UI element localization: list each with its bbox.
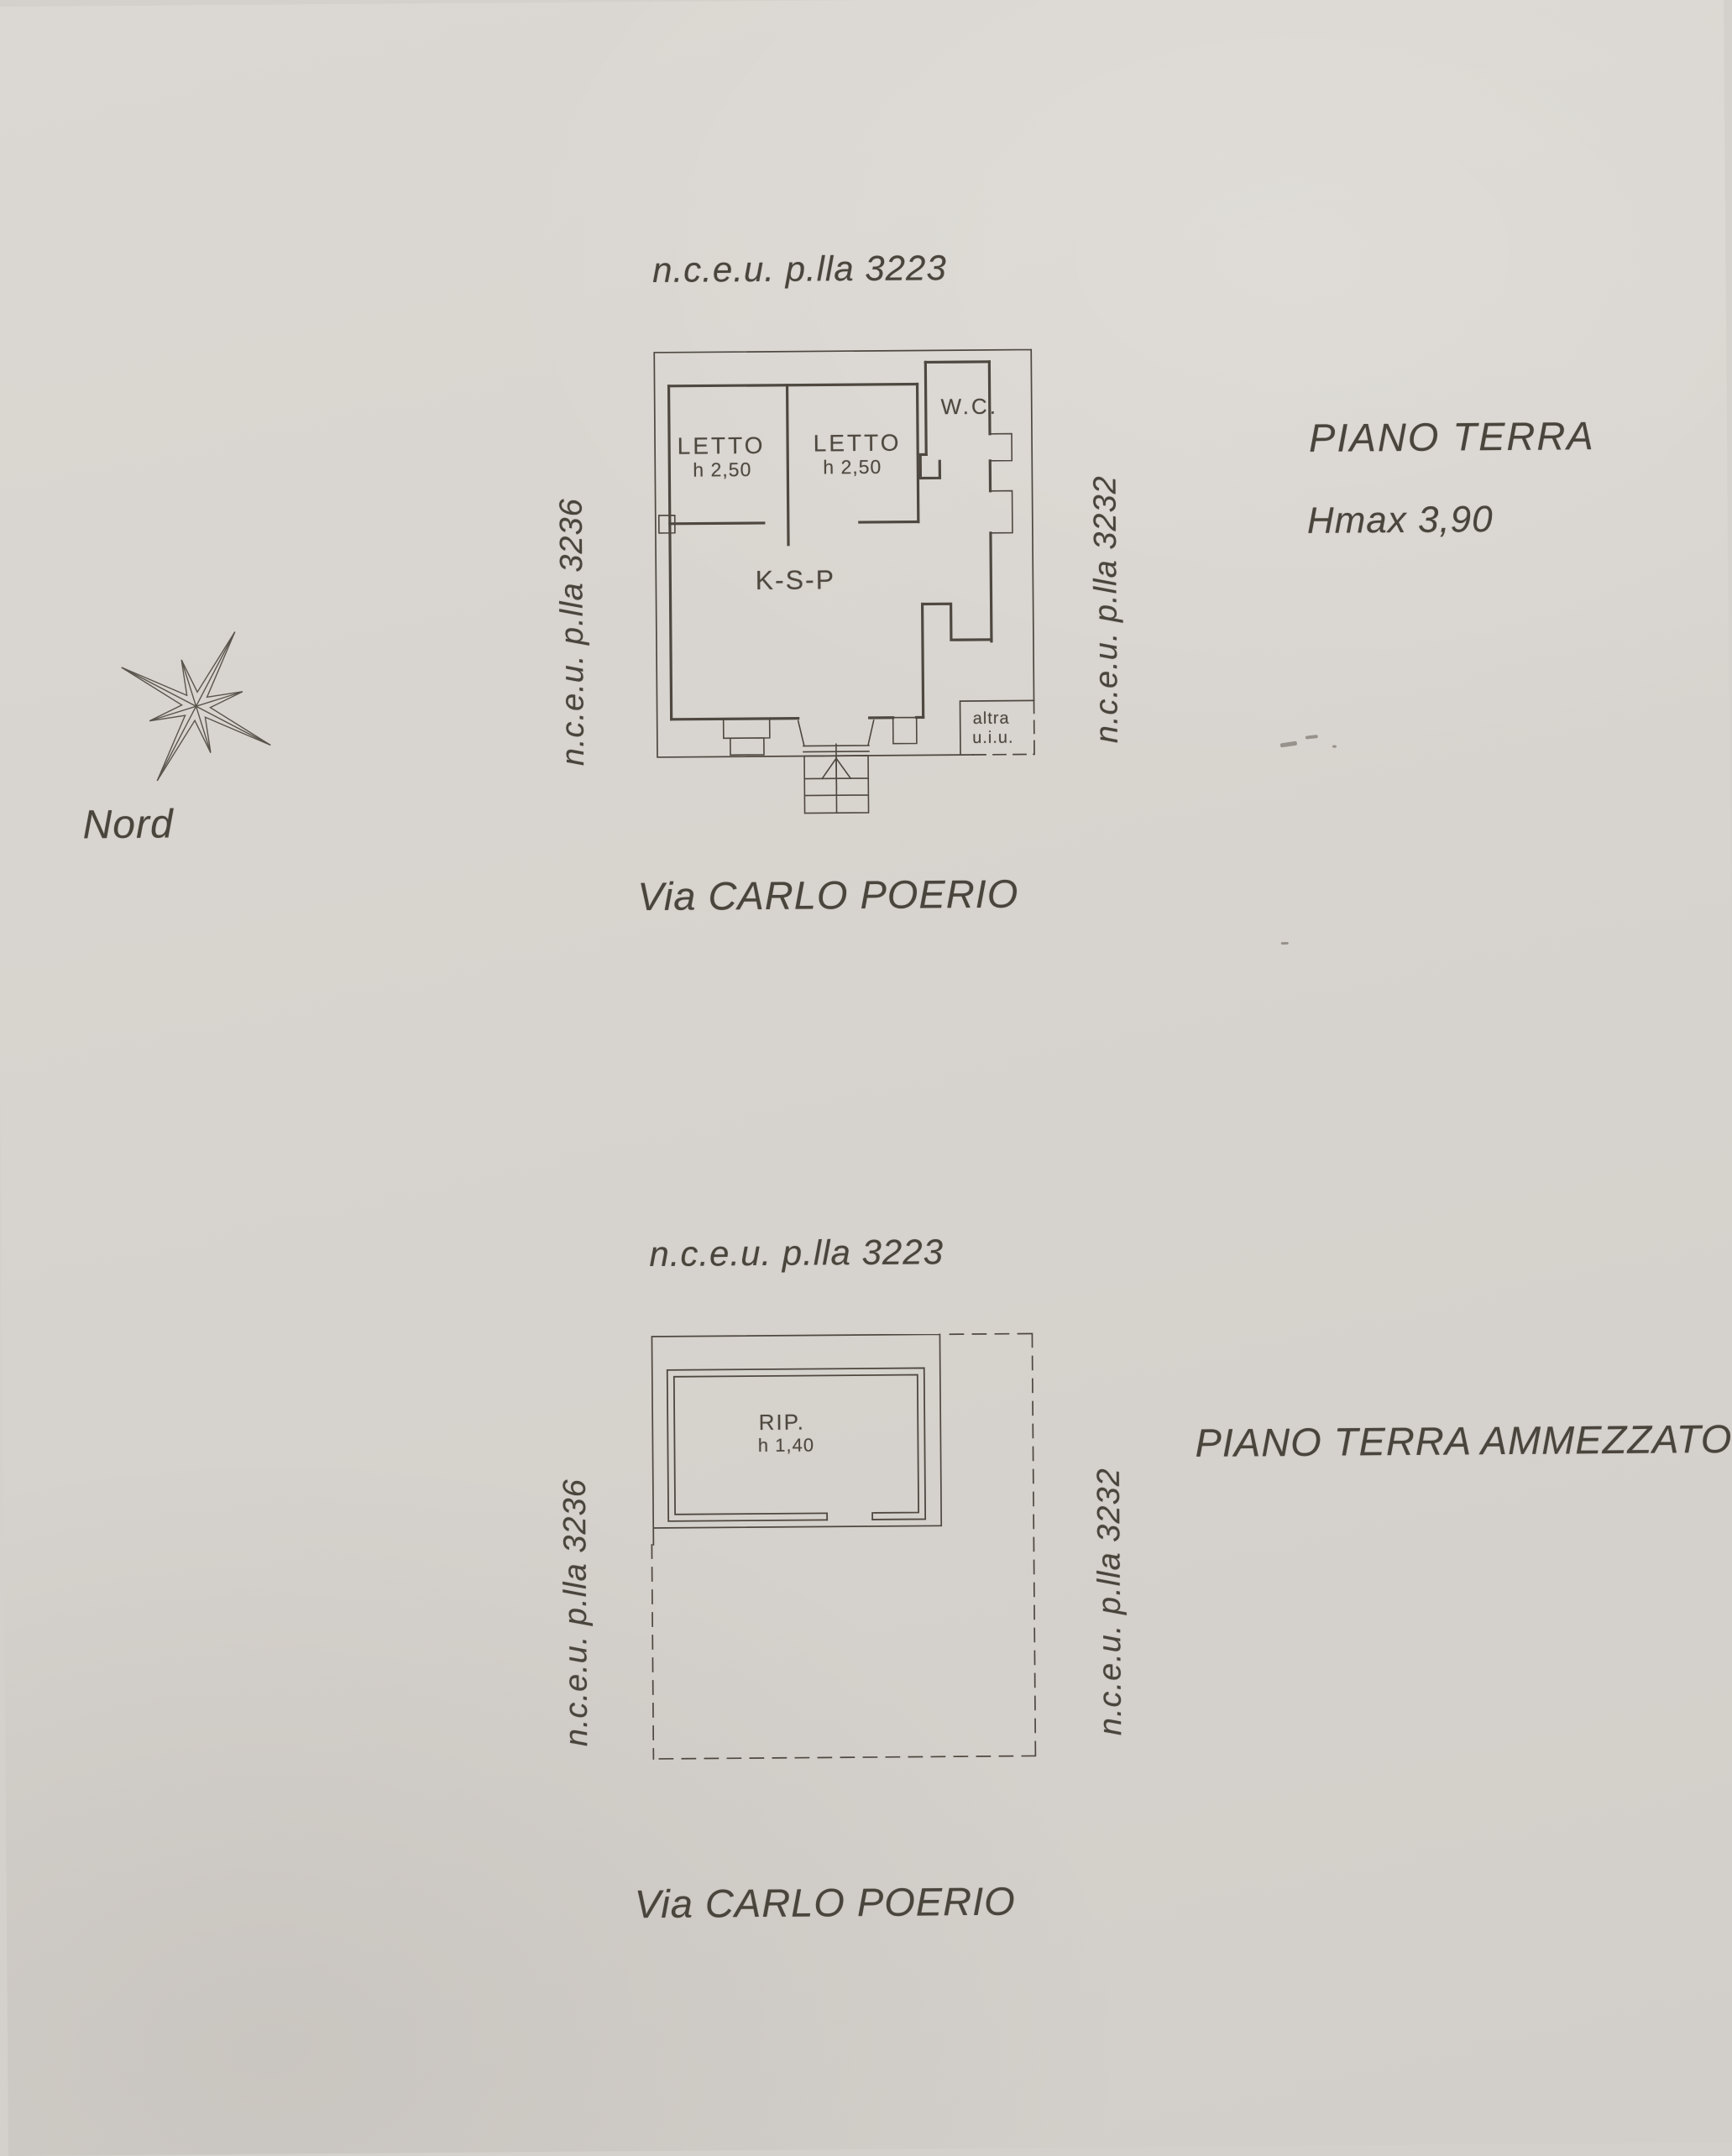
floor2-rip-label: RIP. bbox=[740, 1409, 824, 1436]
floor2-parcel-left-label: n.c.e.u. p.lla 3236 bbox=[555, 1436, 596, 1789]
floor2-parcel-top-label: n.c.e.u. p.lla 3223 bbox=[611, 1232, 981, 1274]
compass-north-label: Nord bbox=[56, 801, 199, 848]
floor1-wc-label: W.C. bbox=[928, 394, 1012, 421]
floor2-parcel-right-label: n.c.e.u. p.lla 3232 bbox=[1089, 1426, 1130, 1778]
floor2-rip-height: h 1,40 bbox=[744, 1434, 828, 1457]
ink-speck bbox=[1332, 746, 1337, 748]
floor1-ksp-label: K-S-P bbox=[736, 564, 854, 596]
floor1-letto2-label: LETTO bbox=[811, 430, 903, 458]
floor1-altra-uiu-label-line2: u.i.u. bbox=[951, 728, 1035, 748]
floor1-altra-uiu-label-line1: altra bbox=[950, 709, 1033, 729]
floor1-parcel-left-label: n.c.e.u. p.lla 3236 bbox=[552, 456, 593, 808]
floor1-stairs bbox=[804, 744, 869, 814]
ink-speck bbox=[1281, 942, 1289, 945]
floor1-letto1-height: h 2,50 bbox=[680, 458, 764, 482]
floor1-title: PIANO TERRA bbox=[1309, 412, 1611, 461]
stairs-up-arrow bbox=[822, 744, 850, 789]
compass-star-icon bbox=[97, 583, 300, 829]
floor1-parcel-top-label: n.c.e.u. p.lla 3223 bbox=[615, 248, 984, 290]
floor2-title: PIANO TERRA AMMEZZATO bbox=[1195, 1416, 1732, 1466]
rip-door-jambs bbox=[827, 1513, 872, 1520]
floor1-parcel-right-label: n.c.e.u. p.lla 3232 bbox=[1086, 433, 1127, 786]
floor1-letto1-label: LETTO bbox=[675, 432, 767, 460]
floor1-max-height: Hmax 3,90 bbox=[1307, 498, 1559, 542]
ink-speck bbox=[1280, 741, 1298, 748]
floor2-street-label: Via CARLO POERIO bbox=[632, 1878, 1018, 1928]
ink-speck bbox=[1306, 735, 1318, 740]
floor2-plan-drawing bbox=[637, 1308, 1060, 1782]
floor1-street-label: Via CARLO POERIO bbox=[635, 871, 1021, 920]
scanned-floorplan-sheet: n.c.e.u. p.lla 3223 PIANO TERRA Hmax 3,9… bbox=[0, 0, 1732, 2156]
floor1-right-windows bbox=[990, 434, 1013, 533]
floor2-dashed-boundary bbox=[650, 1333, 1035, 1759]
floor1-letto2-height: h 2,50 bbox=[810, 456, 894, 479]
floor1-bottom-windows bbox=[724, 718, 917, 756]
